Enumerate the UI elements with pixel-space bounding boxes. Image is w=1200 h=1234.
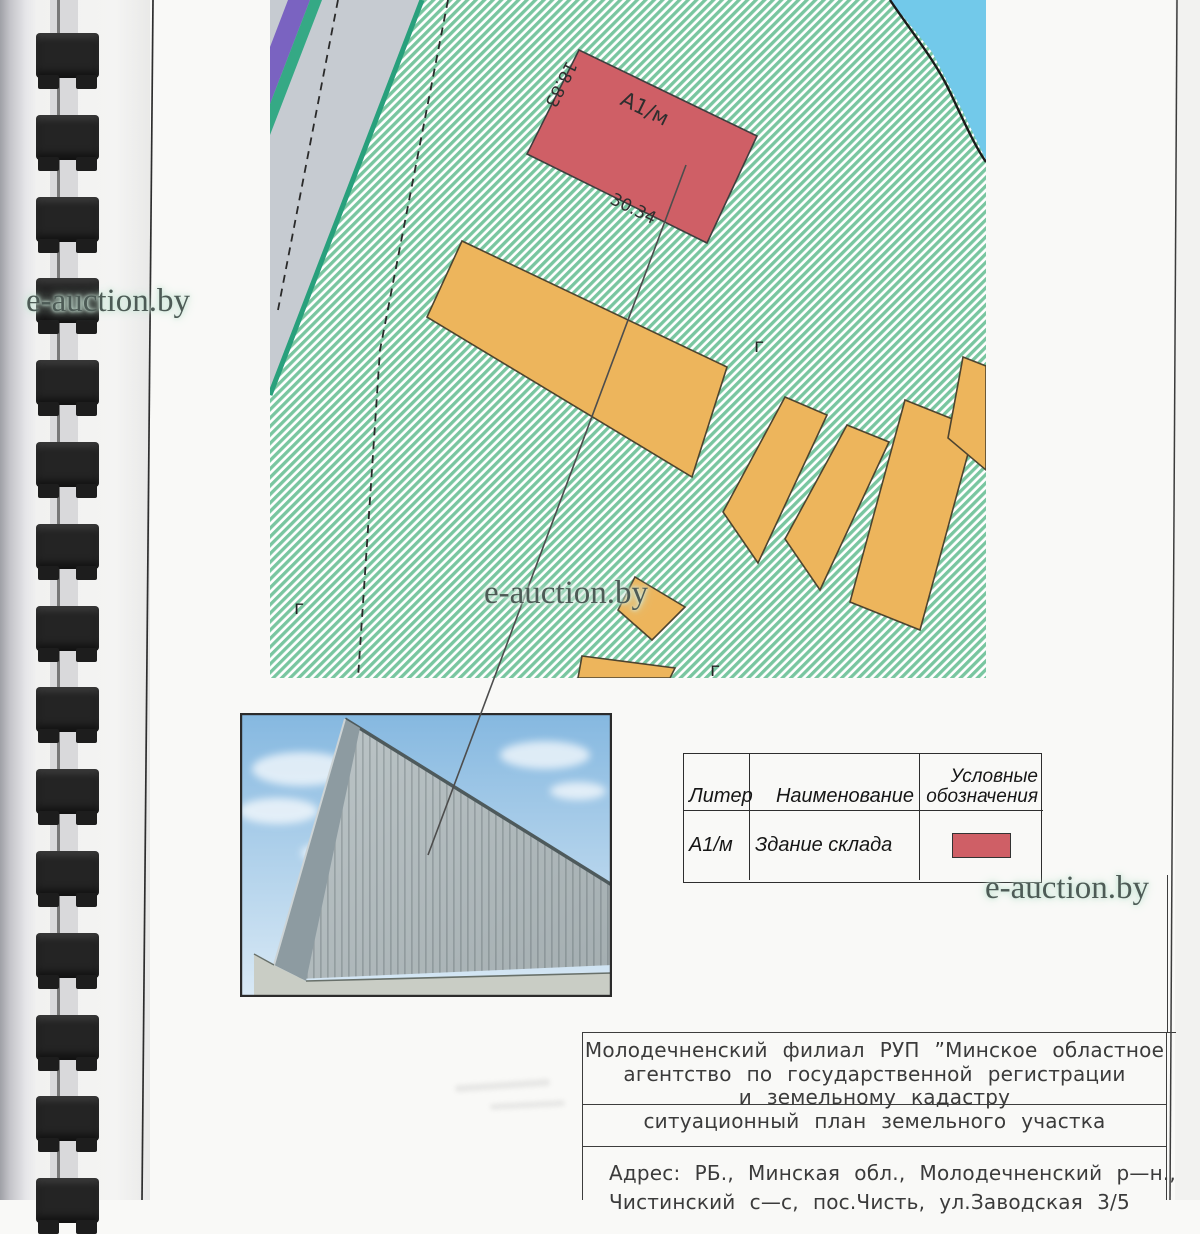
survey-tick: г	[294, 597, 304, 619]
binding-tooth	[36, 197, 99, 242]
legend-table: Литер Наименование Условные обозначения …	[683, 753, 1042, 883]
legend-header-liter: Литер	[684, 754, 750, 811]
legend-header-symbols: Условные обозначения	[920, 754, 1043, 811]
red-building-swatch	[952, 833, 1011, 858]
watermark: e-auction.by	[985, 870, 1149, 907]
binding-tooth	[36, 933, 99, 978]
binding-tooth	[36, 1096, 99, 1141]
legend-header-name: Наименование	[750, 754, 920, 811]
binding-tooth	[36, 1178, 99, 1223]
legend-cell-name: Здание склада	[750, 811, 920, 880]
address-line1: Адрес: РБ., Минская обл., Молодечненский…	[609, 1161, 1176, 1185]
survey-tick: г	[754, 335, 764, 357]
title-block-divider	[583, 1146, 1166, 1147]
binding-tooth	[36, 606, 99, 651]
frame-line-vertical	[1167, 875, 1168, 1032]
binding-tooth	[36, 687, 99, 732]
watermark: e-auction.by	[484, 575, 648, 612]
org-name-line2: агентство по государственной регистрации	[583, 1062, 1166, 1086]
org-name-line3: и земельному кадастру	[583, 1085, 1166, 1109]
binding-tooth	[36, 1015, 99, 1060]
binding-tooth	[36, 851, 99, 896]
frame-line-horizontal	[1167, 1032, 1176, 1033]
binding-tooth	[36, 360, 99, 405]
legend-cell-liter: А1/м	[684, 811, 750, 880]
binding-tooth	[36, 524, 99, 569]
photo-canvas	[240, 713, 612, 997]
warehouse-photo	[240, 713, 612, 997]
binding-tooth	[36, 115, 99, 160]
binding-tooth	[36, 769, 99, 814]
binding-tooth	[36, 442, 99, 487]
title-block-divider	[583, 1104, 1166, 1105]
org-name-line1: Молодечненский филиал РУП ”Минское облас…	[583, 1038, 1166, 1062]
address-line2: Чистинский с—с, пос.Чисть, ул.Заводская …	[609, 1190, 1130, 1214]
binding-comb	[0, 0, 150, 1200]
watermark: e-auction.by	[26, 283, 190, 320]
survey-tick: г	[710, 659, 720, 678]
paper-right-edge	[1175, 0, 1200, 1200]
doc-type-line: ситуационный план земельного участка	[583, 1109, 1166, 1133]
title-block: Молодечненский филиал РУП ”Минское облас…	[582, 1032, 1167, 1200]
binding-tooth	[36, 33, 99, 78]
